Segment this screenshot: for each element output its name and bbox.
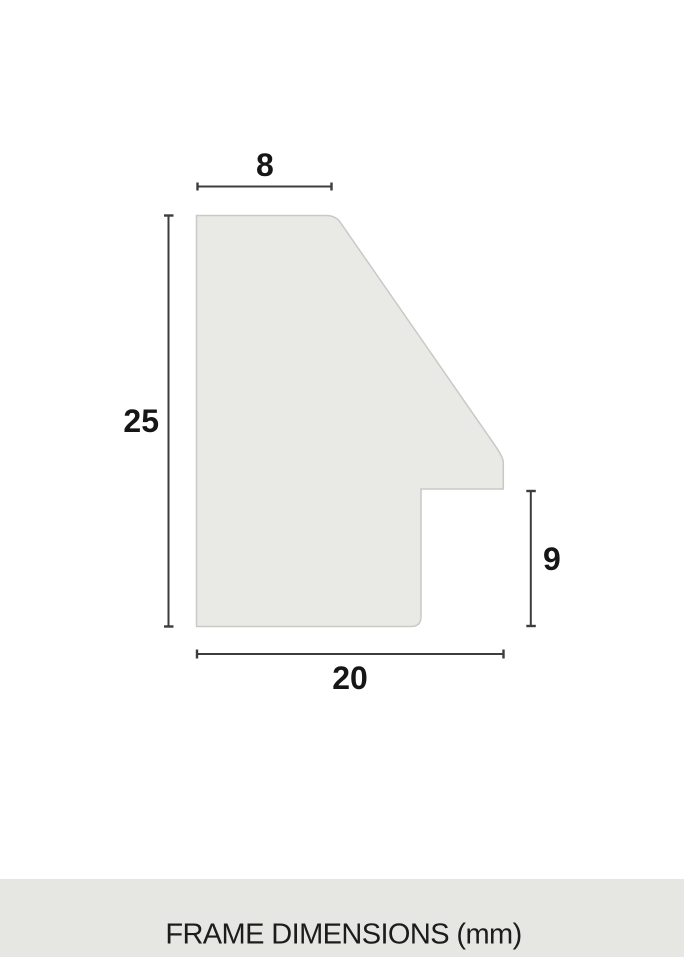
svg-text:9: 9 xyxy=(543,541,561,577)
svg-text:FRAME DIMENSIONS (mm): FRAME DIMENSIONS (mm) xyxy=(165,919,521,951)
svg-text:8: 8 xyxy=(256,147,274,183)
svg-text:20: 20 xyxy=(332,660,368,696)
svg-text:25: 25 xyxy=(123,403,159,439)
